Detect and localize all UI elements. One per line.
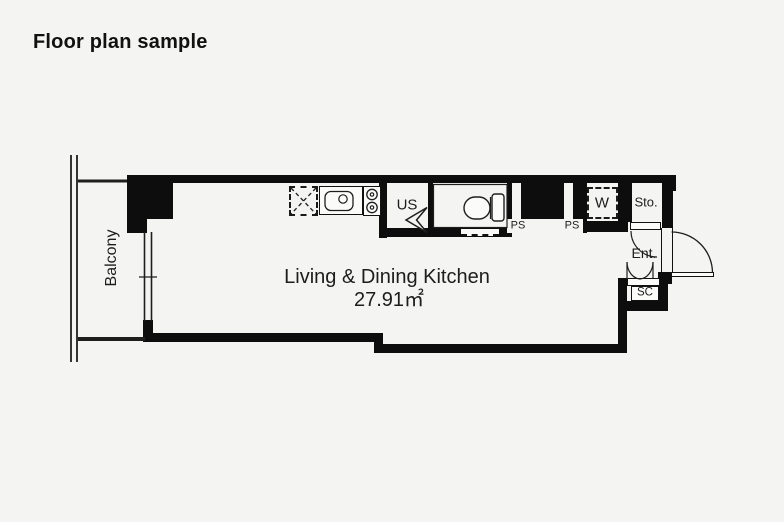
wall-right-of-sc [658,284,668,302]
wall-top-left-block [127,175,173,219]
wall-top-left-strip [127,219,147,233]
ps-slot-left [512,183,521,223]
wall-below-door [658,272,672,284]
shoe-closet-door-edges [627,262,653,279]
us-label: US [397,198,418,213]
ps-left-label: PS [510,221,527,232]
kitchen-stove-unit [363,186,381,216]
wall-sc-left [618,278,627,353]
ldk-name-label: Living & Dining Kitchen [284,267,490,287]
floor-plan-page: Floor plan sample [0,0,784,522]
wall-w-sto-pillar [618,183,632,222]
toilet-sliding-door [461,229,499,236]
wall-below-sc [624,301,668,311]
wall-bottom-upper [143,333,383,342]
entrance-door-leaf [671,272,714,277]
washer-label: W [595,196,609,211]
wall-bottom-lower [374,344,627,353]
page-title: Floor plan sample [33,31,208,54]
wall-right [662,175,673,228]
entrance-label: Ent. [632,246,657,260]
shoe-closet-label: SC [637,287,653,299]
window-icon [145,232,152,321]
entrance-door-arc [672,232,713,273]
refrigerator-space-icon [289,186,318,216]
entrance-step [627,278,660,286]
wall-top [127,175,675,183]
wall-under-w [584,221,628,232]
kitchen-sink-unit [319,186,363,215]
storage-threshold [630,222,661,230]
entrance-door-opening [661,228,673,272]
toilet-room-outline [434,185,508,228]
wall-us-toilet-divider [428,183,433,230]
storage-label: Sto. [634,196,657,209]
toilet-tank-icon [492,194,504,221]
shoe-closet-door-arcs [627,262,653,279]
balcony-label: Balcony [104,230,120,287]
ldk-area-label: 27.91㎡ [354,290,424,310]
ps-slot-right [564,183,573,223]
ps-right-label: PS [564,221,581,232]
toilet-bowl-icon [464,197,490,219]
balcony-edge-lines [71,155,77,362]
